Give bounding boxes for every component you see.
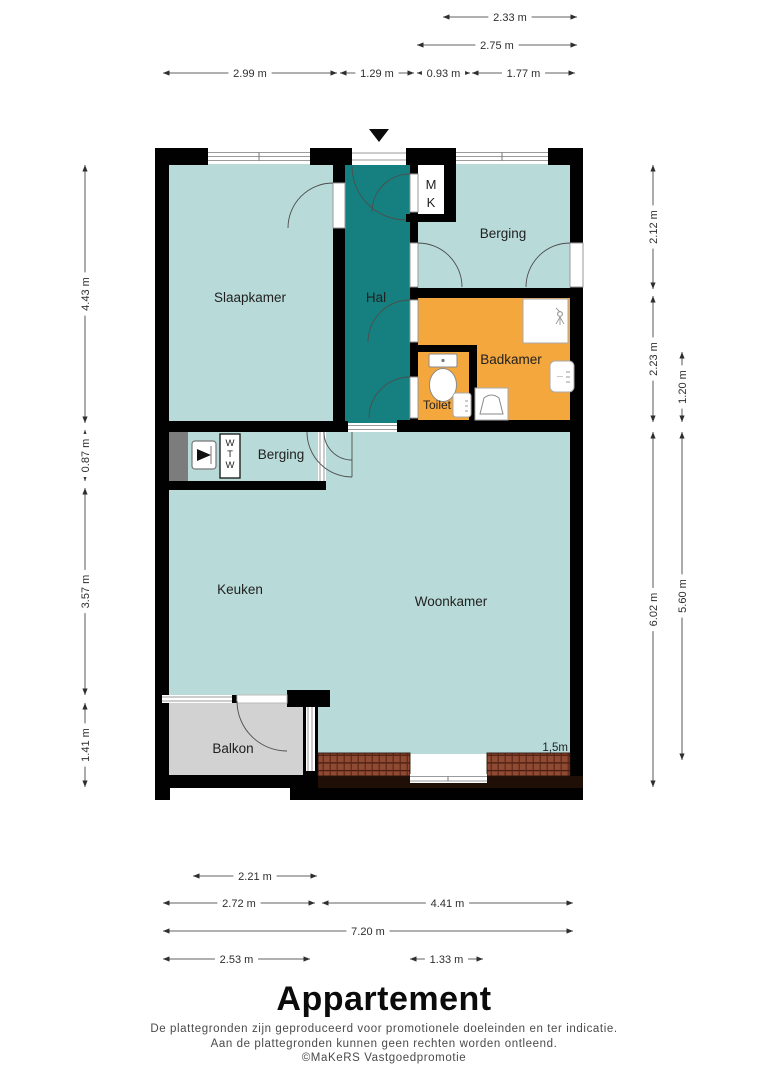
page-title: Appartement [0, 980, 768, 1019]
brick-strip-left [318, 753, 410, 776]
disclaimer-line-1: De plattegronden zijn geproduceerd voor … [0, 1022, 768, 1037]
label-berging-mid: Berging [258, 447, 305, 462]
credit-line: ©MaKeRS Vastgoedpromotie [0, 1051, 768, 1066]
dimension-label: 2.21 m [238, 871, 272, 883]
door-leaf-meterkast [410, 174, 418, 212]
disclaimer-line-2: Aan de plattegronden kunnen geen rechten… [0, 1037, 768, 1052]
brick-wall-strips [318, 753, 570, 776]
dimension-line: 7.20 m [163, 925, 573, 939]
dimension-label: 1.41 m [80, 728, 92, 762]
wtw-letter-1: W [226, 438, 235, 449]
dimension-label: 4.43 m [80, 277, 92, 311]
wtw-unit: W T W [220, 434, 240, 478]
dimension-label: 2.33 m [493, 12, 527, 24]
dimension-label: 2.99 m [233, 68, 267, 80]
window-berging-top [456, 149, 548, 164]
dimension-label: 0.87 m [80, 439, 92, 473]
sink-fixture [550, 361, 574, 392]
label-toilet: Toilet [423, 398, 452, 412]
dimension-label: 2.53 m [220, 954, 254, 966]
dimension-label: 2.72 m [222, 898, 256, 910]
dimension-label: 4.41 m [431, 898, 465, 910]
wtw-letter-2: T [227, 449, 233, 460]
brick-strip-right [487, 753, 570, 776]
door-leaf-berging [410, 243, 418, 287]
dimension-label: 5.60 m [677, 579, 689, 613]
washbasin-fixture [475, 388, 508, 420]
label-slaapkamer: Slaapkamer [214, 290, 287, 305]
dimension-line: 2.23 m [647, 296, 661, 422]
storage-gray-block [169, 432, 188, 481]
door-leaf-berging-exterior [570, 243, 583, 287]
dimension-line: 4.43 m [79, 165, 93, 423]
label-keuken: Keuken [217, 582, 263, 597]
entrance-threshold [352, 148, 406, 165]
window-balkon [162, 695, 232, 703]
label-woonkamer: Woonkamer [415, 594, 488, 609]
floorplan-page: W T W Slaapkamer Hal Berging Badkamer To… [0, 0, 768, 1086]
floorplan-svg: W T W Slaapkamer Hal Berging Badkamer To… [0, 0, 768, 1086]
entrance-arrow-icon [369, 129, 389, 142]
door-leaf-slaapkamer [333, 183, 345, 228]
dimension-label: 1.77 m [507, 68, 541, 80]
dimension-label: 1.29 m [360, 68, 394, 80]
label-meterkast-m: M [426, 177, 437, 192]
shower-fixture [523, 299, 568, 343]
footer-disclaimer: De plattegronden zijn geproduceerd voor … [0, 1022, 768, 1066]
dimension-line: 2.72 m [163, 897, 315, 911]
dimension-label: 7.20 m [351, 926, 385, 938]
glass-panel-hal-door [348, 423, 397, 432]
dimension-label: 0.93 m [427, 68, 461, 80]
label-wall-height: 1,5m [542, 742, 568, 754]
dimension-line: 0.87 m [79, 430, 93, 481]
dimension-line: 6.02 m [647, 432, 661, 787]
dimension-label: 2.23 m [648, 342, 660, 376]
balkon-railing [306, 707, 315, 771]
dimension-line: 2.33 m [443, 11, 577, 25]
label-hal: Hal [366, 290, 386, 305]
dimension-label: 1.20 m [677, 370, 689, 404]
wtw-letter-3: W [226, 460, 235, 471]
window-slaapkamer-top [208, 149, 310, 164]
dimension-label: 2.75 m [480, 40, 514, 52]
label-berging-top: Berging [480, 226, 527, 241]
dimension-label: 2.12 m [648, 210, 660, 244]
label-meterkast-k: K [427, 195, 436, 210]
dimension-line: 2.99 m [163, 67, 337, 81]
dimension-line: 0.93 m [417, 67, 470, 81]
door-leaf-toilet [410, 377, 418, 418]
window-brick-gap [410, 774, 487, 783]
dimension-line: 1.77 m [472, 67, 575, 81]
dimension-line: 2.12 m [647, 165, 661, 289]
dimension-line: 1.20 m [676, 352, 690, 422]
dimension-label: 3.57 m [80, 575, 92, 609]
dimension-line: 2.75 m [417, 39, 577, 53]
boiler-unit [192, 441, 216, 469]
door-leaf-badkamer [410, 300, 418, 342]
dimension-line: 1.33 m [410, 953, 483, 967]
label-balkon: Balkon [212, 741, 253, 756]
dimension-line: 1.41 m [79, 703, 93, 787]
dimension-label: 1.33 m [430, 954, 464, 966]
door-leaf-balkon [237, 695, 287, 703]
label-badkamer: Badkamer [480, 352, 542, 367]
dimension-line: 3.57 m [79, 488, 93, 695]
dimension-line: 5.60 m [676, 432, 690, 760]
dimension-line: 1.29 m [340, 67, 414, 81]
dimension-line: 2.21 m [193, 870, 317, 884]
toilet-basin-fixture [453, 393, 471, 417]
dimension-line: 2.53 m [163, 953, 310, 967]
dimension-line: 4.41 m [322, 897, 573, 911]
dimension-label: 6.02 m [648, 593, 660, 627]
